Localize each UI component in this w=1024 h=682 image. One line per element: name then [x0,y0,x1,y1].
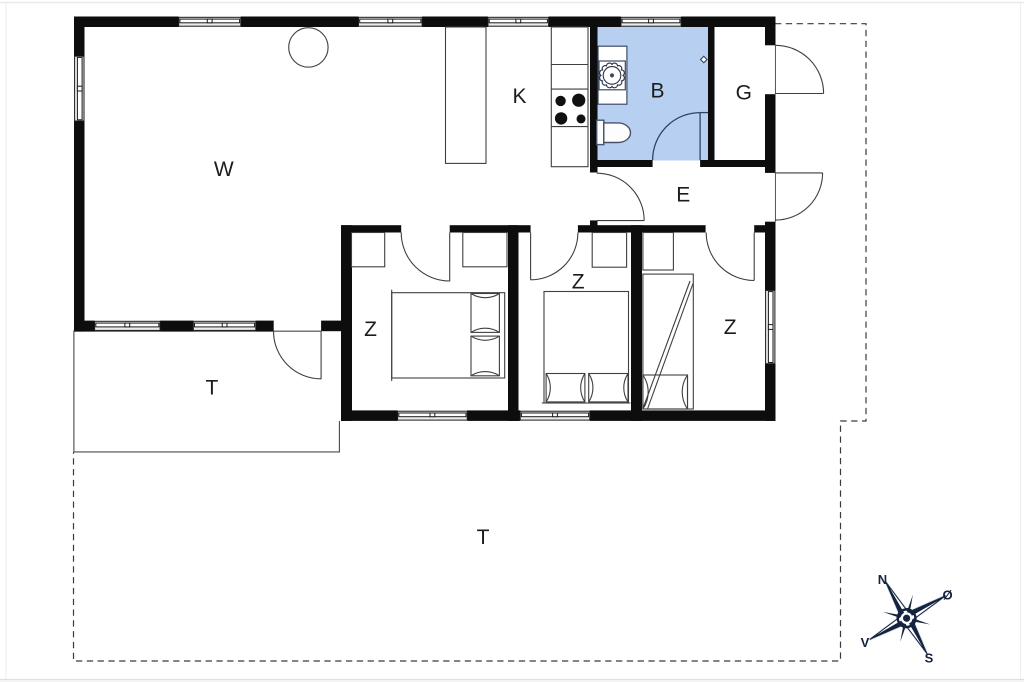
svg-text:T: T [477,526,490,549]
svg-text:V: V [861,635,870,650]
svg-text:E: E [676,184,690,207]
svg-text:K: K [512,85,526,108]
svg-text:Ø: Ø [942,588,952,603]
svg-text:G: G [736,82,752,105]
svg-text:B: B [650,80,664,103]
svg-text:N: N [878,572,887,587]
svg-text:Z: Z [724,316,737,339]
svg-text:Z: Z [364,318,377,341]
svg-text:W: W [214,158,234,181]
svg-text:Z: Z [572,270,585,293]
svg-text:S: S [925,650,934,665]
svg-text:T: T [205,377,218,400]
